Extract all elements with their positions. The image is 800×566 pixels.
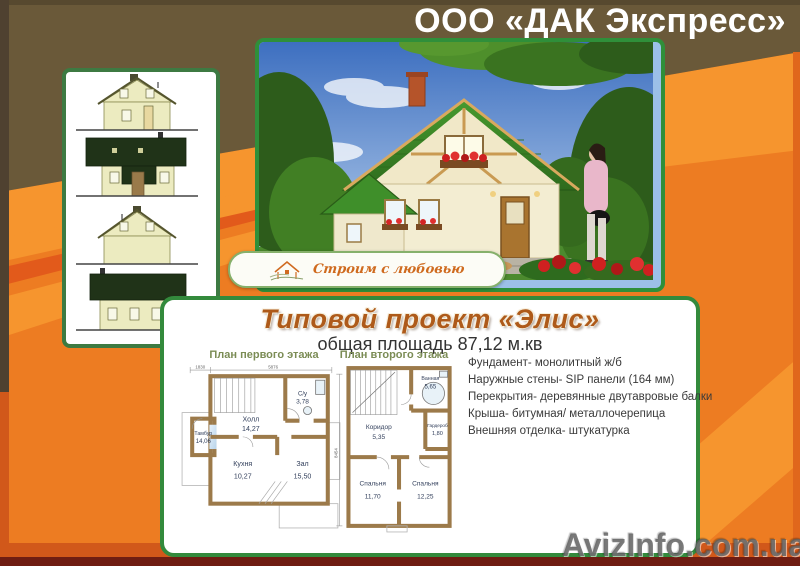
staircase [350, 370, 397, 415]
room-name: Спальня [360, 480, 387, 487]
room-name: Спальня [412, 480, 439, 487]
room-area: 1,80 [432, 431, 443, 437]
room-name: Гардероб [427, 423, 448, 428]
slogan-text: Строим с любовью [313, 262, 466, 277]
elevation-front [76, 74, 198, 130]
room-name: Холл [243, 416, 260, 424]
flyer-page: ООО «ДАК Экспресс» [0, 0, 800, 566]
spec-line: Крыша- битумная/ металлочерепица [468, 408, 694, 420]
room-area: 12,25 [417, 494, 434, 501]
room-area: 14,06 [196, 439, 212, 445]
room-name: Зал [296, 460, 308, 468]
dim-label: 1830 [195, 365, 205, 370]
staircase [214, 378, 254, 412]
room-area: 10,27 [234, 472, 252, 480]
room-area: 3,78 [296, 398, 309, 405]
dim-label: 5876 [268, 365, 278, 370]
shower-fixture [316, 380, 325, 394]
room-area: 15,50 [294, 472, 312, 480]
room-area: 5,65 [424, 384, 436, 390]
sink-fixture [304, 407, 312, 415]
sink-fixture [439, 371, 447, 377]
project-panel: Типовой проект «Элис» общая площадь 87,1… [160, 296, 700, 557]
project-title: Типовой проект «Элис» [164, 304, 696, 335]
room-name: Тамбур [194, 431, 212, 437]
elevation-side-a [76, 132, 198, 196]
dim-label: 8454 [333, 448, 338, 458]
company-title: ООО «ДАК Экспресс» [414, 2, 786, 41]
room-name: Коридор [366, 424, 392, 431]
watermark: AvizInfo.com.ua [562, 527, 800, 564]
room-name: С/у [298, 391, 308, 397]
specs-list: Фундамент- монолитный ж/б Наружные стены… [468, 357, 694, 442]
room-name: Ванная [421, 376, 439, 382]
spec-line: Наружные стены- SIP панели (164 мм) [468, 374, 694, 386]
elevation-rear [76, 206, 198, 264]
first-floor-plan: 1830 5876 Холл 14,27 С/у [180, 362, 342, 532]
room-area: 5,35 [372, 434, 385, 441]
room-area: 14,27 [242, 425, 260, 433]
second-floor-plan: 8454 Ванная 5,65 Коридор 5,35 Гарде [332, 360, 462, 536]
spec-line: Фундамент- монолитный ж/б [468, 357, 694, 369]
spec-line: Перекрытия- деревянные двутавровые балки [468, 391, 694, 403]
logo-banner: Строим с любовью [228, 251, 506, 288]
room-area: 11,70 [365, 494, 381, 501]
house-photo [259, 42, 653, 280]
spec-line: Внешняя отделка- штукатурка [468, 425, 694, 437]
house-sketch-icon [269, 258, 305, 282]
room-name: Кухня [233, 460, 252, 468]
